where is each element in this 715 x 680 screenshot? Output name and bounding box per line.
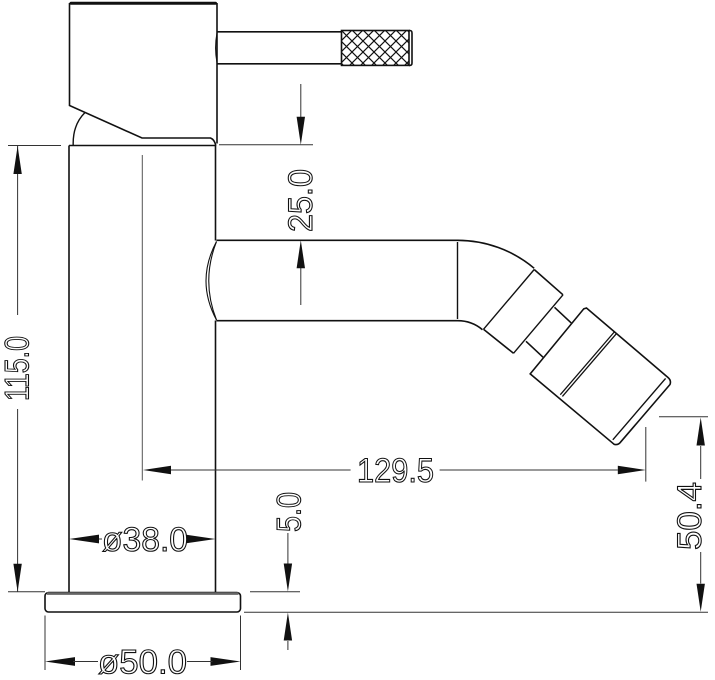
svg-text:5.0: 5.0	[271, 492, 309, 532]
svg-text:ø50.0: ø50.0	[98, 644, 187, 680]
svg-text:50.4: 50.4	[671, 482, 709, 550]
svg-text:129.5: 129.5	[357, 452, 434, 490]
svg-text:ø38.0: ø38.0	[102, 521, 188, 559]
svg-text:115.0: 115.0	[0, 336, 37, 401]
svg-text:25.0: 25.0	[282, 169, 320, 232]
